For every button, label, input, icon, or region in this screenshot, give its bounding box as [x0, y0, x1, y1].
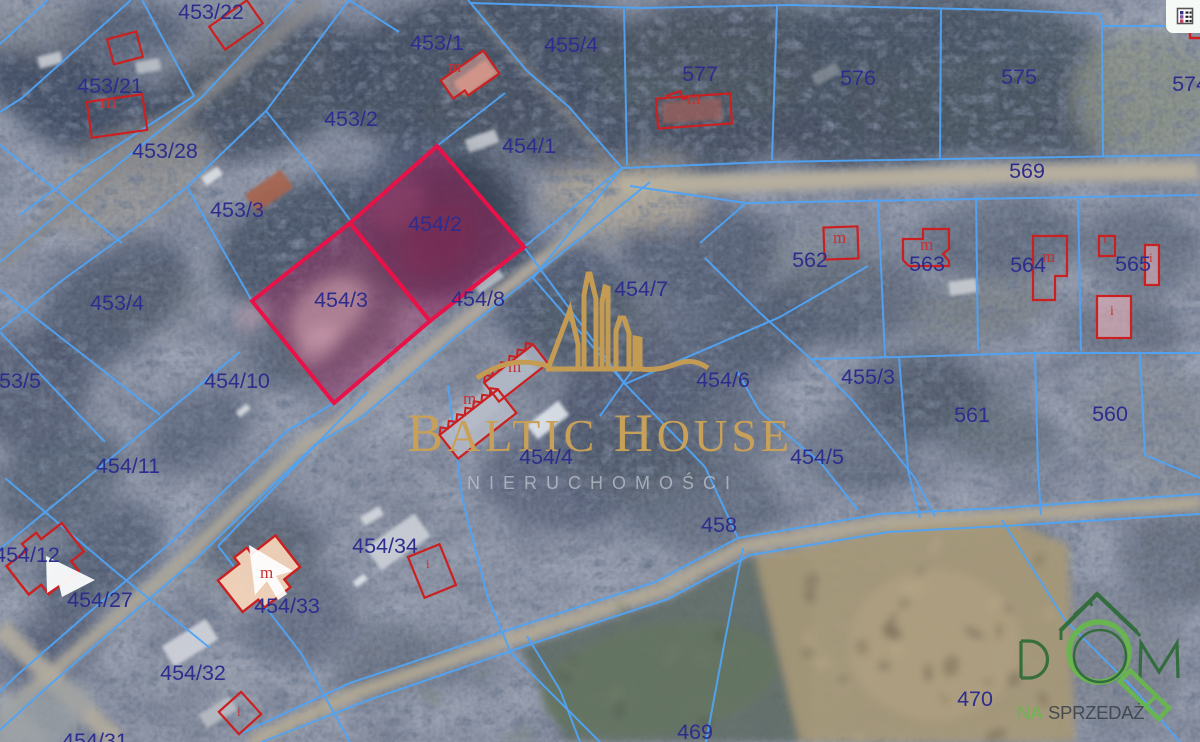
svg-text:453/3: 453/3 [210, 198, 264, 222]
svg-text:575: 575 [1001, 65, 1037, 89]
svg-text:454/4: 454/4 [519, 445, 573, 469]
svg-text:m: m [260, 563, 273, 582]
svg-text:574: 574 [1172, 72, 1200, 96]
svg-text:455/3: 455/3 [841, 365, 895, 389]
svg-text:470: 470 [957, 687, 993, 711]
svg-text:SPRZEDAŻ: SPRZEDAŻ [1048, 702, 1144, 723]
svg-text:562: 562 [792, 248, 828, 272]
svg-text:454/32: 454/32 [160, 661, 226, 685]
svg-text:454/7: 454/7 [614, 277, 668, 301]
svg-text:m: m [833, 228, 846, 247]
svg-text:454/3: 454/3 [314, 288, 368, 312]
svg-text:NIERUCHOMOŚCI: NIERUCHOMOŚCI [467, 472, 739, 493]
svg-text:454/2: 454/2 [408, 212, 462, 236]
svg-text:454/31: 454/31 [62, 729, 128, 742]
svg-text:564: 564 [1010, 253, 1046, 277]
svg-text:i: i [1110, 304, 1114, 319]
svg-text:454/27: 454/27 [67, 588, 133, 612]
svg-text:454/5: 454/5 [790, 445, 844, 469]
svg-text:453/1: 453/1 [410, 31, 464, 55]
svg-text:454/33: 454/33 [254, 594, 320, 618]
svg-text:BALTIC HOUSE: BALTIC HOUSE [407, 403, 793, 463]
svg-text:453/5: 453/5 [0, 369, 41, 393]
svg-text:m: m [463, 389, 476, 408]
svg-text:454/10: 454/10 [204, 369, 270, 393]
svg-text:577: 577 [682, 62, 718, 86]
svg-text:m: m [687, 89, 700, 108]
svg-text:453/22: 453/22 [178, 0, 244, 24]
svg-text:569: 569 [1009, 159, 1045, 183]
svg-text:i: i [120, 26, 124, 41]
svg-text:m: m [448, 57, 461, 76]
svg-text:561: 561 [954, 403, 990, 427]
svg-text:i: i [237, 704, 241, 719]
svg-text:469: 469 [677, 720, 713, 742]
svg-text:454/11: 454/11 [96, 454, 160, 478]
svg-text:563: 563 [909, 252, 945, 276]
svg-text:454/34: 454/34 [352, 534, 418, 558]
svg-text:453/28: 453/28 [132, 139, 198, 163]
svg-text:454/6: 454/6 [696, 368, 750, 392]
svg-text:453/2: 453/2 [324, 107, 378, 131]
svg-text:454/8: 454/8 [451, 287, 505, 311]
svg-text:565: 565 [1115, 252, 1151, 276]
svg-text:454/1: 454/1 [502, 134, 556, 158]
svg-text:455/4: 455/4 [544, 33, 598, 57]
svg-text:458: 458 [701, 513, 737, 537]
svg-text:453/21: 453/21 [77, 74, 143, 98]
svg-text:576: 576 [840, 66, 876, 90]
svg-text:454/12: 454/12 [0, 543, 60, 567]
svg-text:453/4: 453/4 [90, 291, 144, 315]
svg-text:i: i [426, 556, 430, 571]
svg-text:i: i [1103, 231, 1107, 246]
svg-text:560: 560 [1092, 402, 1128, 426]
svg-text:NA: NA [1017, 702, 1043, 723]
